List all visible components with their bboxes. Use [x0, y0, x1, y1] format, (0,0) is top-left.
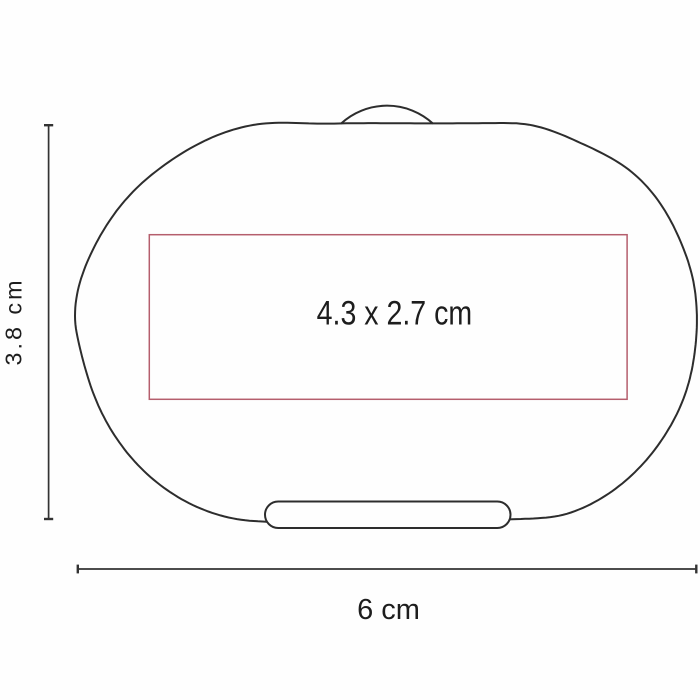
svg-text:4.3 x 2.7 cm: 4.3 x 2.7 cm	[317, 295, 473, 333]
svg-text:6 cm: 6 cm	[357, 594, 420, 626]
svg-text:3.8 cm: 3.8 cm	[1, 281, 27, 366]
